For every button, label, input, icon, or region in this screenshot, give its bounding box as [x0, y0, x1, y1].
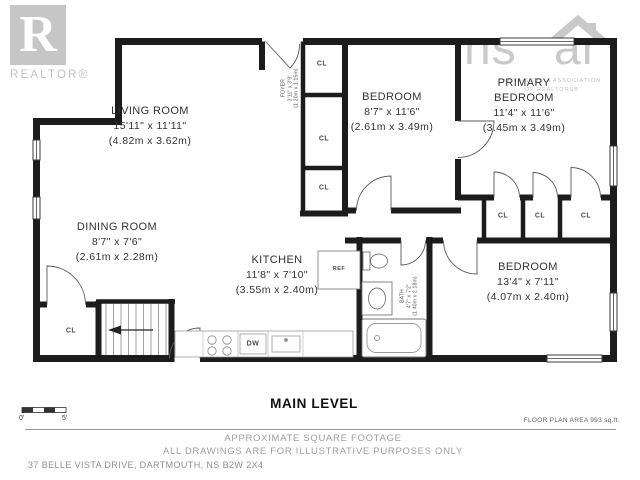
scale-bar	[22, 408, 66, 413]
room-label-bedroom-middle: BEDROOM 8'7" x 11'6" (2.61m x 3.49m)	[351, 90, 433, 135]
room-label-bedroom-right: BEDROOM 13'4" x 7'11" (4.07m x 2.40m)	[487, 260, 569, 305]
closet-label: CL	[319, 136, 329, 143]
room-imperial: 11'8" x 7'10"	[236, 268, 318, 283]
dishwasher-label: DW	[247, 341, 260, 348]
room-metric: (1.40m x 2.18m)	[412, 276, 419, 315]
floor-plan-area-note: FLOOR PLAN AREA 993 sq.ft.	[524, 417, 620, 424]
room-imperial: 8'7" x 7'6"	[76, 235, 158, 250]
footer-divider	[25, 429, 616, 430]
closet-label: CL	[66, 328, 76, 335]
room-imperial: 8'7" x 11'6"	[351, 105, 433, 120]
room-imperial: 15'11" x 11'11"	[109, 119, 191, 134]
room-imperial: 13'4" x 7'11"	[487, 275, 569, 290]
stairs	[106, 304, 166, 356]
room-metric: (4.82m x 3.62m)	[109, 134, 191, 149]
room-metric: (4.07m x 2.40m)	[487, 290, 569, 305]
closet-label: CL	[581, 213, 591, 220]
closet-label: CL	[535, 213, 545, 220]
room-name: KITCHEN	[236, 253, 318, 268]
room-label-primary-bedroom: PRIMARY BEDROOM 11'4" x 11'6" (3.45m x 3…	[483, 76, 565, 136]
fridge-label: REF	[333, 266, 346, 272]
room-metric: (2.61m x 2.28m)	[76, 250, 158, 265]
room-name: DINING ROOM	[76, 220, 158, 235]
level-title: MAIN LEVEL	[270, 396, 358, 411]
room-label-dining-room: DINING ROOM 8'7" x 7'6" (2.61m x 2.28m)	[76, 220, 158, 265]
room-label-living-room: LIVING ROOM 15'11" x 11'11" (4.82m x 3.6…	[109, 104, 191, 149]
room-label-kitchen: KITCHEN 11'8" x 7'10" (3.55m x 2.40m)	[236, 253, 318, 298]
closet-label: CL	[317, 61, 327, 68]
toilet-bowl	[371, 254, 388, 268]
room-name: BEDROOM	[351, 90, 433, 105]
room-name: BEDROOM	[487, 260, 569, 275]
room-name-line1: PRIMARY	[483, 76, 565, 91]
room-name: LIVING ROOM	[109, 104, 191, 119]
room-metric: (3.45m x 3.49m)	[483, 121, 565, 136]
room-metric: (2.61m x 3.49m)	[351, 120, 433, 135]
room-label-foyer: FOYER 3'11" x 3'9" (1.20m x 1.15m)	[280, 68, 300, 107]
vanity-basin	[369, 288, 386, 309]
closet-label: CL	[498, 213, 508, 220]
room-metric: (3.55m x 2.40m)	[236, 283, 318, 298]
scale-start-label: 0'	[19, 415, 24, 422]
scale-end-label: 5'	[62, 415, 67, 422]
room-label-bath: BATH 4'7" x 7'2" (1.40m x 2.18m)	[399, 276, 419, 315]
room-imperial: 11'4" x 11'6"	[483, 106, 565, 121]
closet-label: CL	[319, 185, 329, 192]
property-address: 37 BELLE VISTA DRIVE, DARTMOUTH, NS B2W …	[28, 460, 263, 470]
room-metric: (1.20m x 1.15m)	[293, 68, 300, 107]
room-name-line2: BEDROOM	[483, 91, 565, 106]
stairs-arrowhead-icon	[108, 326, 121, 335]
toilet-tank	[363, 252, 370, 270]
disclaimer-line2: ALL DRAWINGS ARE FOR ILLUSTRATIVE PURPOS…	[163, 446, 463, 457]
floor-plan-page: R REALTOR® ns ar NOVA SCOTIA ASSOCIATION…	[0, 0, 640, 480]
disclaimer-line1: APPROXIMATE SQUARE FOOTAGE	[224, 433, 401, 444]
